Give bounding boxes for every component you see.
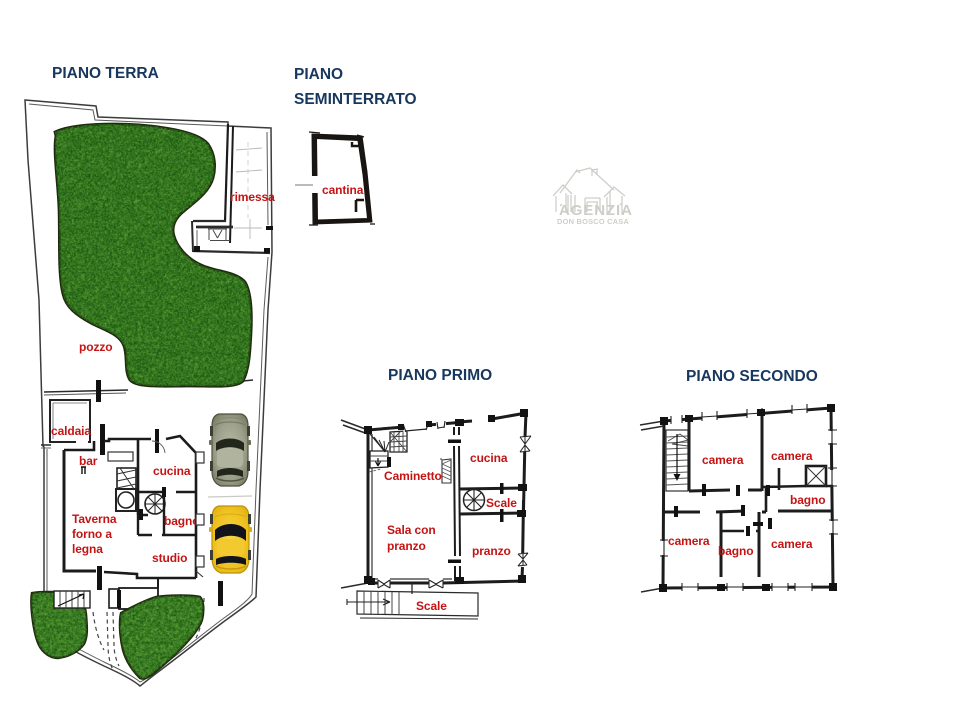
- svg-text:caldaia: caldaia: [51, 424, 91, 438]
- svg-text:camera: camera: [771, 537, 813, 551]
- svg-text:pranzo: pranzo: [387, 539, 426, 553]
- svg-text:bagno: bagno: [164, 514, 200, 528]
- svg-text:DON BOSCO CASA: DON BOSCO CASA: [557, 217, 629, 226]
- svg-text:PIANO: PIANO: [294, 66, 343, 83]
- svg-text:Scale: Scale: [486, 496, 517, 510]
- svg-text:bagno: bagno: [790, 493, 826, 507]
- svg-text:PIANO PRIMO: PIANO PRIMO: [388, 367, 492, 384]
- svg-text:Taverna: Taverna: [72, 512, 117, 526]
- svg-text:PIANO TERRA: PIANO TERRA: [52, 65, 159, 82]
- svg-text:SEMINTERRATO: SEMINTERRATO: [294, 91, 417, 108]
- svg-text:rimessa: rimessa: [230, 190, 275, 204]
- svg-text:PIANO SECONDO: PIANO SECONDO: [686, 368, 818, 385]
- svg-text:bar: bar: [79, 454, 98, 468]
- svg-text:camera: camera: [771, 449, 813, 463]
- svg-text:pozzo: pozzo: [79, 340, 113, 354]
- svg-text:camera: camera: [702, 453, 744, 467]
- svg-text:forno a: forno a: [72, 527, 112, 541]
- svg-text:cantina: cantina: [322, 183, 364, 197]
- svg-text:Caminetto: Caminetto: [384, 469, 442, 483]
- svg-text:cucina: cucina: [470, 451, 508, 465]
- svg-text:Scale: Scale: [416, 599, 447, 613]
- svg-text:pranzo: pranzo: [472, 544, 511, 558]
- svg-text:legna: legna: [72, 542, 103, 556]
- svg-text:Sala con: Sala con: [387, 523, 436, 537]
- svg-text:cucina: cucina: [153, 464, 191, 478]
- svg-text:studio: studio: [152, 551, 187, 565]
- svg-text:camera: camera: [668, 534, 710, 548]
- svg-text:bagno: bagno: [718, 544, 754, 558]
